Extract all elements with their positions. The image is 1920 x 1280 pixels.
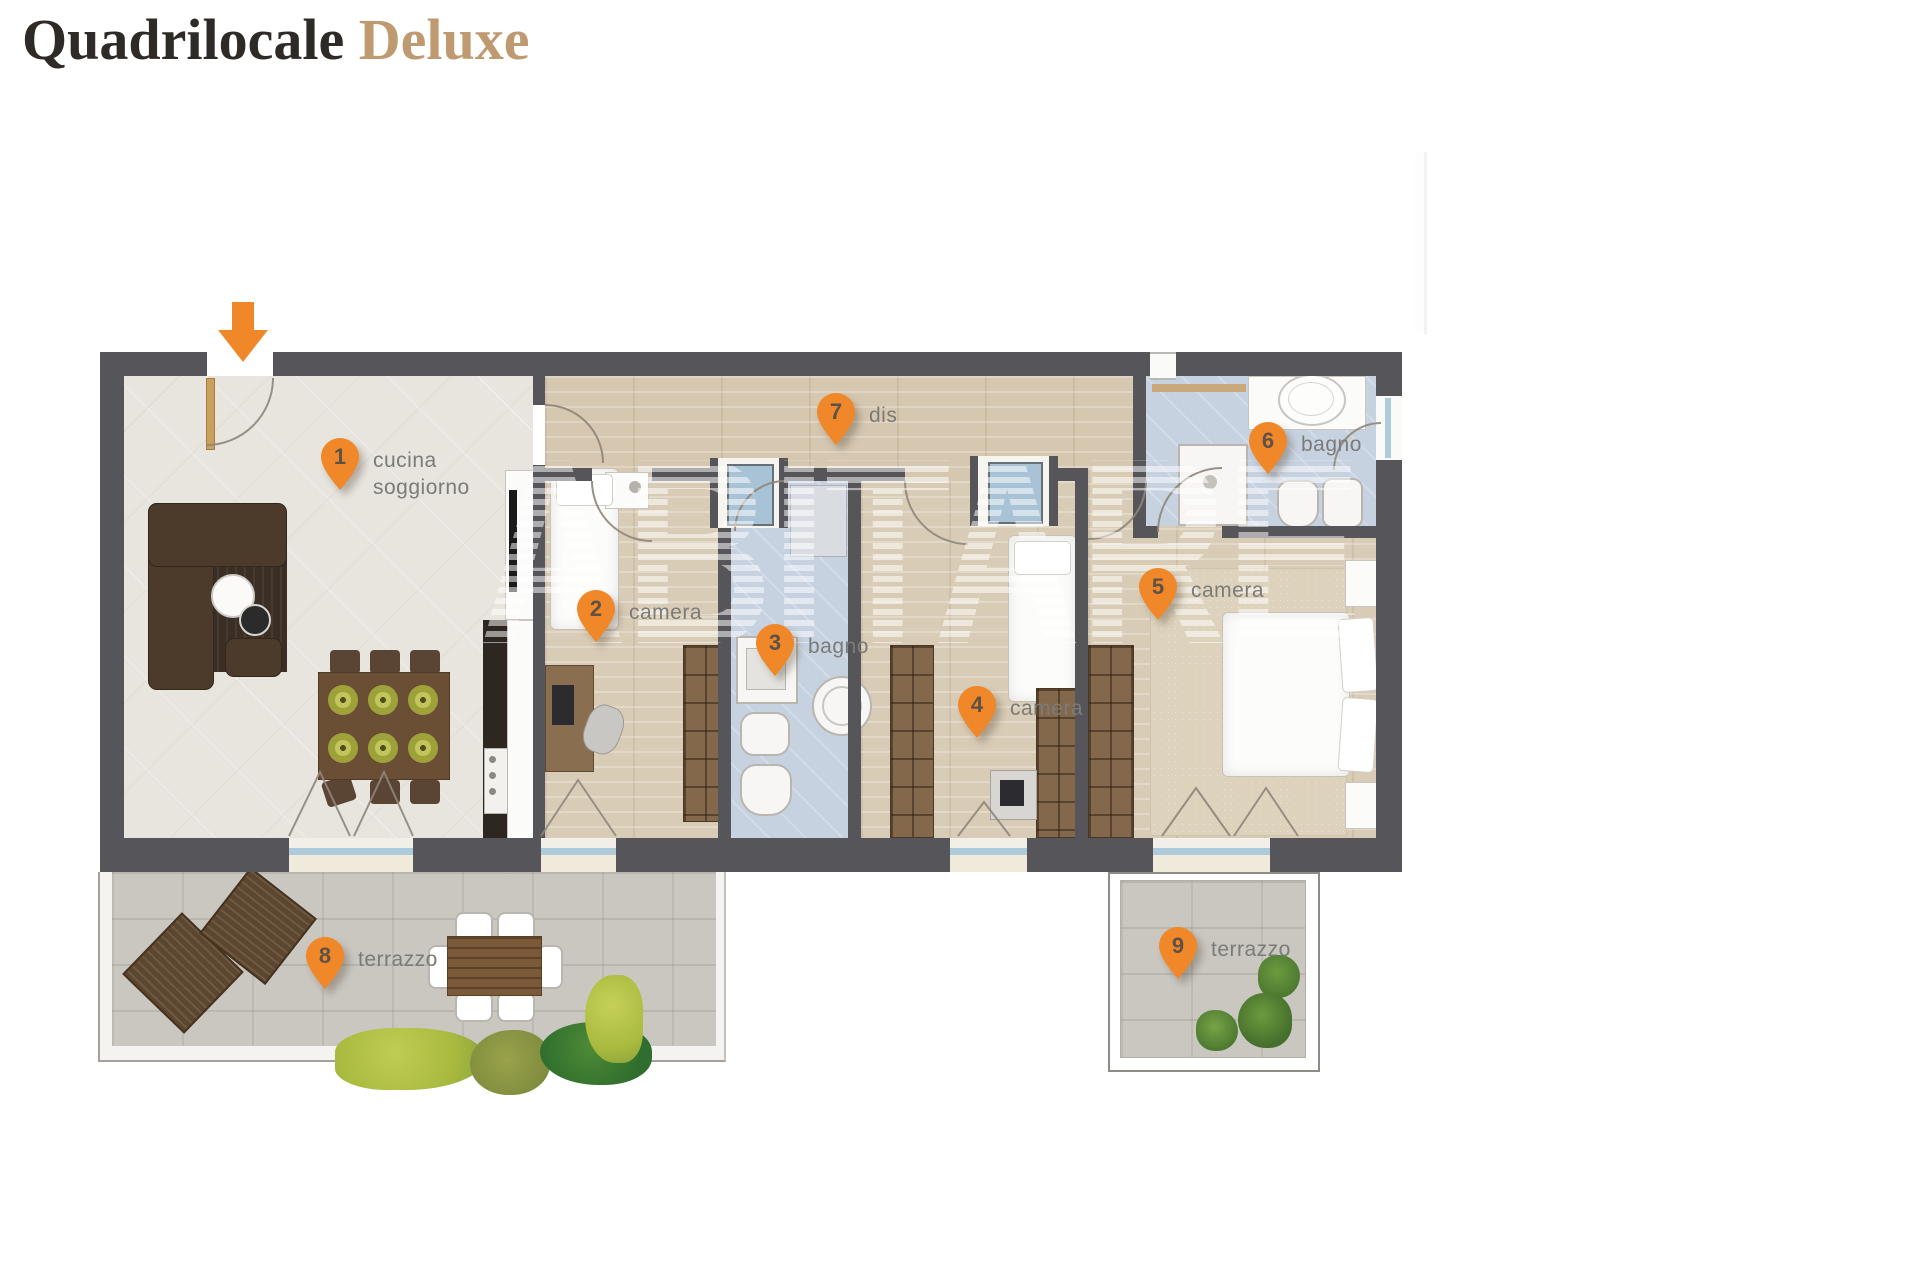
wall [1176,352,1402,376]
room-label: camera [1010,695,1083,722]
room-label: camera [629,599,702,626]
location-pin-icon: 4 [957,685,997,739]
glass-door [541,838,616,872]
title-accent: Deluxe [359,7,530,72]
bed-pillow [1337,697,1378,773]
hedge-bush [335,1028,485,1090]
wall [545,468,592,481]
burner [489,756,496,763]
glazed-partition [988,462,1043,524]
room-marker-9: 9 terrazzo [1158,926,1291,980]
glass-door [289,838,413,872]
dining-chair [410,780,440,804]
potted-bush [1196,1010,1238,1051]
plate [368,733,398,763]
window [1150,352,1176,380]
lamp [629,481,641,493]
glass-window [950,838,1027,872]
title-main: Quadrilocale [22,7,344,72]
desk-monitor [552,685,574,725]
wall-post [779,458,788,528]
room-marker-4: 4 camera [957,685,1083,739]
plate [328,685,358,715]
shower-3 [790,485,847,557]
room-marker-8: 8 terrazzo [305,936,438,990]
toilet-3 [740,764,792,816]
wall [100,838,289,872]
wall [273,352,1150,376]
wardrobe-4-left [890,645,934,838]
sofa-ottoman [225,638,282,677]
page-title: Quadrilocale Deluxe [22,6,529,73]
desk-monitor [1000,780,1024,806]
nightstand [1345,782,1378,829]
room-marker-5: 5 camera [1138,567,1264,621]
wall [1376,460,1402,872]
wall [1222,526,1376,538]
plate [408,685,438,715]
location-pin-icon: 1 [320,437,360,491]
window-glass [1385,398,1391,458]
wall [652,468,718,481]
location-pin-icon: 9 [1158,926,1198,980]
burner [489,788,496,795]
wall [413,838,541,872]
terrace-chair [455,992,493,1022]
toilet-6 [1277,480,1319,528]
glazed-partition [727,464,774,526]
entrance-arrow-icon [218,302,268,362]
terrace-table [447,936,542,996]
location-pin-icon: 6 [1248,421,1288,475]
wall [100,352,124,872]
floor-plan-page: Quadrilocale Deluxe [0,0,1920,1280]
dining-chair [370,780,400,804]
room-label: bagno [1301,431,1362,458]
bathtub-inner [1288,382,1334,416]
wall [533,376,545,405]
bidet-3 [740,712,790,756]
glass-door [1153,838,1270,872]
location-pin-icon: 8 [305,936,345,990]
burner [489,772,496,779]
room-label: bagno [808,633,869,660]
shower-head [1203,475,1217,489]
nightstand [1345,560,1378,607]
hedge-bush [470,1030,550,1095]
room-label: camera [1191,577,1264,604]
side-table [239,604,271,636]
wall [1376,352,1402,396]
wardrobe-5 [1088,645,1134,838]
dining-chair [330,650,360,674]
location-pin-icon: 3 [755,623,795,677]
wall [616,838,950,872]
wall [1027,838,1153,872]
wall [1270,838,1402,872]
wall [718,481,731,838]
room-label: terrazzo [358,946,438,973]
wall [1133,376,1146,538]
plate [408,733,438,763]
bidet-6 [1322,478,1363,528]
sofa-chaise [148,503,287,567]
room-label: dis [869,402,897,429]
plate [328,733,358,763]
dining-chair [370,650,400,674]
location-pin-icon: 7 [816,392,856,446]
potted-bush [1238,993,1292,1048]
room-marker-1: 1 cucina soggiorno [320,437,470,502]
room-label: terrazzo [1211,936,1291,963]
shelf-6 [1152,384,1246,392]
location-pin-icon: 2 [576,589,616,643]
wall [779,468,905,481]
terrace-chair [497,992,535,1022]
hedge-bush [585,975,643,1063]
scan-edge-artifact [1424,152,1427,334]
plate [368,685,398,715]
wall [1146,526,1158,538]
wall-post [1049,456,1058,526]
cooktop [484,748,508,814]
room-marker-3: 3 bagno [755,623,869,677]
room-marker-2: 2 camera [576,589,702,643]
bed-double-5 [1222,612,1350,777]
wall [1075,481,1088,838]
location-pin-icon: 5 [1138,567,1178,621]
room-marker-7: 7 dis [816,392,897,446]
room-marker-6: 6 bagno [1248,421,1362,475]
wall [533,465,545,838]
bed-pillow [1337,617,1378,693]
tv [509,490,517,592]
room-label: cucina soggiorno [373,447,470,502]
entrance-door-leaf [206,378,215,450]
bed-pillow [1014,541,1071,575]
dining-chair [410,650,440,674]
